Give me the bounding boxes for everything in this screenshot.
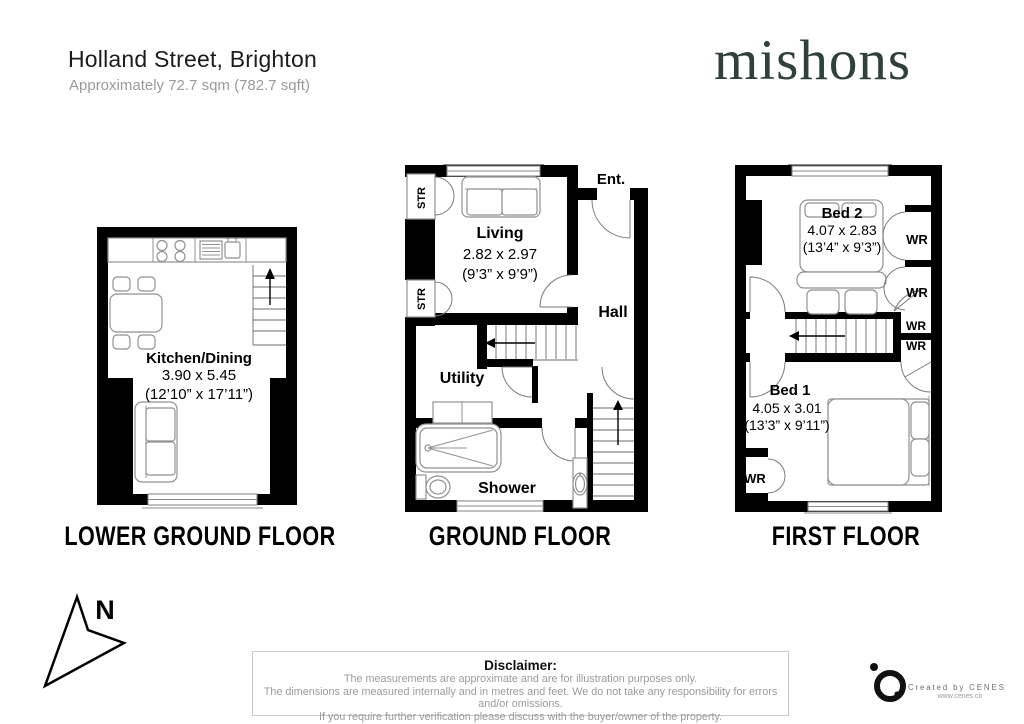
- sofa: [462, 177, 540, 217]
- bed2-door: [750, 277, 785, 312]
- disclaimer-line: If you require further verification plea…: [253, 711, 788, 724]
- floorplan-lower-ground: Kitchen/Dining 3.90 x 5.45 (12’10” x 17’…: [96, 225, 301, 512]
- floorplan-first: Bed 2 4.07 x 2.83 (13’4” x 9’3”) Bed 1 4…: [733, 163, 945, 514]
- page-title: Holland Street, Brighton: [68, 46, 317, 73]
- sink-icon: [200, 239, 240, 260]
- disclaimer-title: Disclaimer:: [253, 658, 788, 673]
- room-bed1-imperial: (13’3” x 9’11”): [744, 417, 829, 433]
- window-bottom: [457, 501, 543, 511]
- storage-closet-top: [407, 174, 454, 219]
- room-shower-label: Shower: [478, 480, 536, 497]
- room-kitchen-dining-metric: 3.90 x 5.45: [162, 367, 236, 384]
- entrance-door: [592, 200, 630, 238]
- wardrobe-label-3: WR: [906, 319, 926, 333]
- basin-icon: [573, 458, 587, 508]
- floor-label-first: FIRST FLOOR: [686, 521, 1006, 552]
- storage-label-top: STR: [416, 187, 428, 209]
- room-kitchen-dining-imperial: (12’10” x 17’11”): [145, 386, 253, 403]
- kitchen-counter: [108, 238, 286, 262]
- credit-url: www.cenes.co: [908, 693, 1012, 700]
- room-utility-label: Utility: [440, 370, 485, 387]
- staircase: [789, 319, 886, 353]
- north-arrow-icon: N: [30, 582, 140, 697]
- staircase-down-right: [593, 400, 634, 496]
- stairs-down-door: [602, 367, 634, 399]
- room-bed2-imperial: (13’4” x 9’3”): [803, 239, 882, 255]
- dining-table: [110, 277, 162, 349]
- room-living-name: Living: [476, 225, 523, 242]
- wardrobe-label-1: WR: [906, 232, 928, 247]
- storage-closet-mid: [407, 280, 452, 317]
- disclaimer-box: Disclaimer: The measurements are approxi…: [252, 651, 789, 716]
- room-entrance-label: Ent.: [597, 171, 625, 188]
- toilet-icon: [416, 475, 450, 499]
- staircase-middle: [485, 325, 578, 360]
- disclaimer-line: The measurements are approximate and are…: [253, 673, 788, 686]
- floorplan-ground: Ent. Living 2.82 x 2.97 (9’3” x 9’9”) Ha…: [405, 163, 650, 514]
- room-bed2-metric: 4.07 x 2.83: [807, 222, 876, 238]
- staircase-up: [253, 265, 286, 345]
- understairs-door: [901, 362, 931, 392]
- room-hall-label: Hall: [598, 304, 627, 321]
- page-subtitle: Approximately 72.7 sqm (782.7 sqft): [69, 77, 310, 94]
- window-bottom: [142, 494, 263, 508]
- wardrobe-label-5: WR: [744, 471, 766, 486]
- storage-label-mid: STR: [416, 288, 428, 310]
- disclaimer-line: The dimensions are measured internally a…: [253, 686, 788, 711]
- wardrobe-label-4: WR: [906, 339, 926, 353]
- room-living-metric: 2.82 x 2.97: [463, 246, 537, 263]
- floor-label-ground: GROUND FLOOR: [360, 521, 680, 552]
- living-hall-door: [540, 275, 572, 307]
- bath-icon: [416, 424, 501, 472]
- window-top: [788, 165, 892, 177]
- window-top: [443, 165, 544, 177]
- compass-north-label: N: [95, 595, 115, 625]
- wardrobe-bottom-left-doors: [768, 459, 785, 493]
- room-bed1-name: Bed 1: [770, 382, 811, 399]
- shower-door: [542, 428, 575, 461]
- room-living-imperial: (9’3” x 9’9”): [462, 266, 538, 283]
- utility-hall-door: [502, 367, 532, 397]
- bed1-furniture: [828, 396, 929, 486]
- agency-logo: mishons: [714, 28, 974, 93]
- wardrobe-1-doors: [883, 212, 905, 260]
- credit-created-by: Created by CENES: [908, 683, 1012, 692]
- utility-counter: [433, 402, 492, 423]
- room-bed2-name: Bed 2: [822, 205, 863, 222]
- wardrobe-2-doors: [884, 267, 905, 310]
- wardrobe-label-2: WR: [906, 285, 928, 300]
- room-kitchen-dining-name: Kitchen/Dining: [146, 350, 252, 367]
- floor-label-lower-ground: LOWER GROUND FLOOR: [40, 521, 360, 552]
- sofa: [135, 402, 177, 482]
- window-bottom: [804, 502, 892, 513]
- credit-text: Created by CENES www.cenes.co: [908, 683, 1012, 700]
- room-bed1-metric: 4.05 x 3.01: [752, 400, 821, 416]
